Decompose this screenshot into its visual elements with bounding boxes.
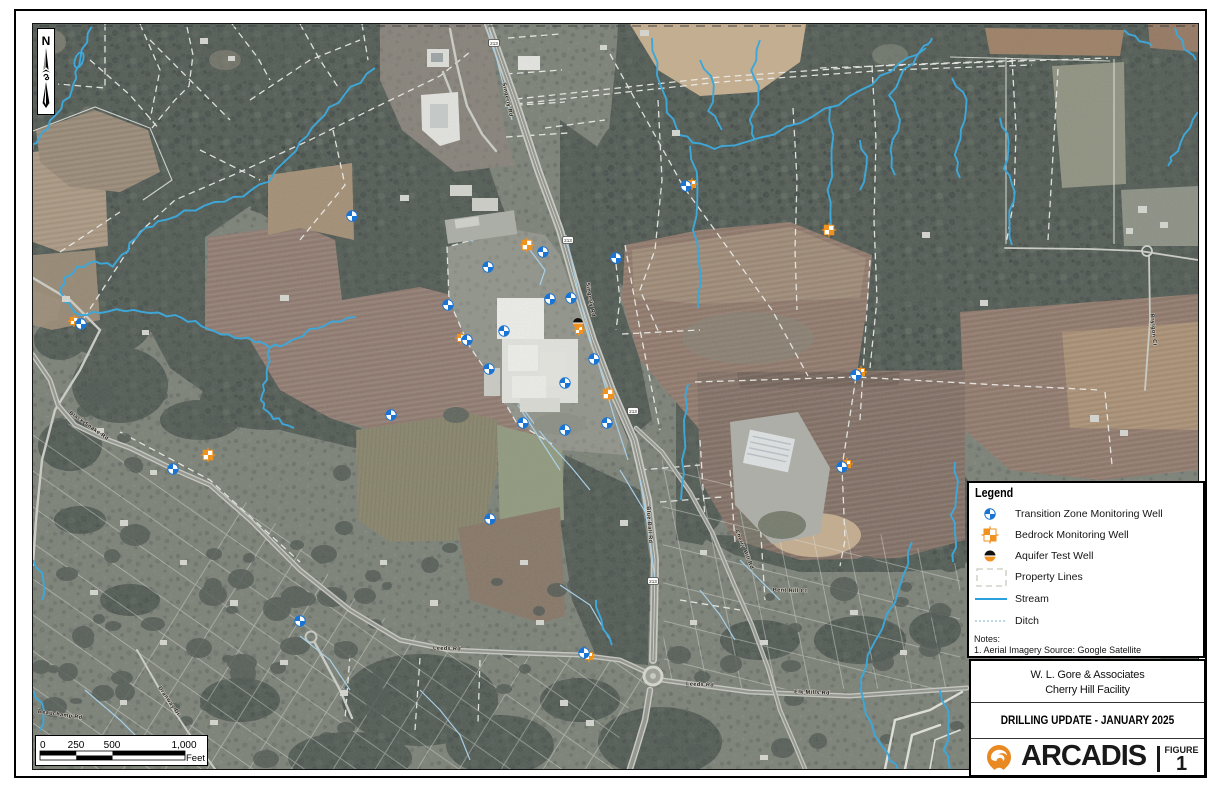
- svg-text:Feet: Feet: [186, 753, 205, 764]
- svg-text:Elk Mills Rd: Elk Mills Rd: [794, 689, 830, 696]
- svg-text:250: 250: [68, 740, 85, 751]
- svg-text:Leeds Rd: Leeds Rd: [433, 646, 461, 653]
- svg-text:Bent Hill Ct: Bent Hill Ct: [773, 587, 808, 594]
- svg-text:213: 213: [629, 409, 637, 414]
- svg-text:213: 213: [649, 579, 657, 584]
- svg-text:N: N: [42, 34, 51, 48]
- svg-text:213: 213: [564, 238, 572, 243]
- svg-text:1,000: 1,000: [171, 740, 196, 751]
- svg-text:0: 0: [40, 740, 46, 751]
- svg-text:213: 213: [490, 41, 498, 46]
- svg-text:500: 500: [104, 740, 121, 751]
